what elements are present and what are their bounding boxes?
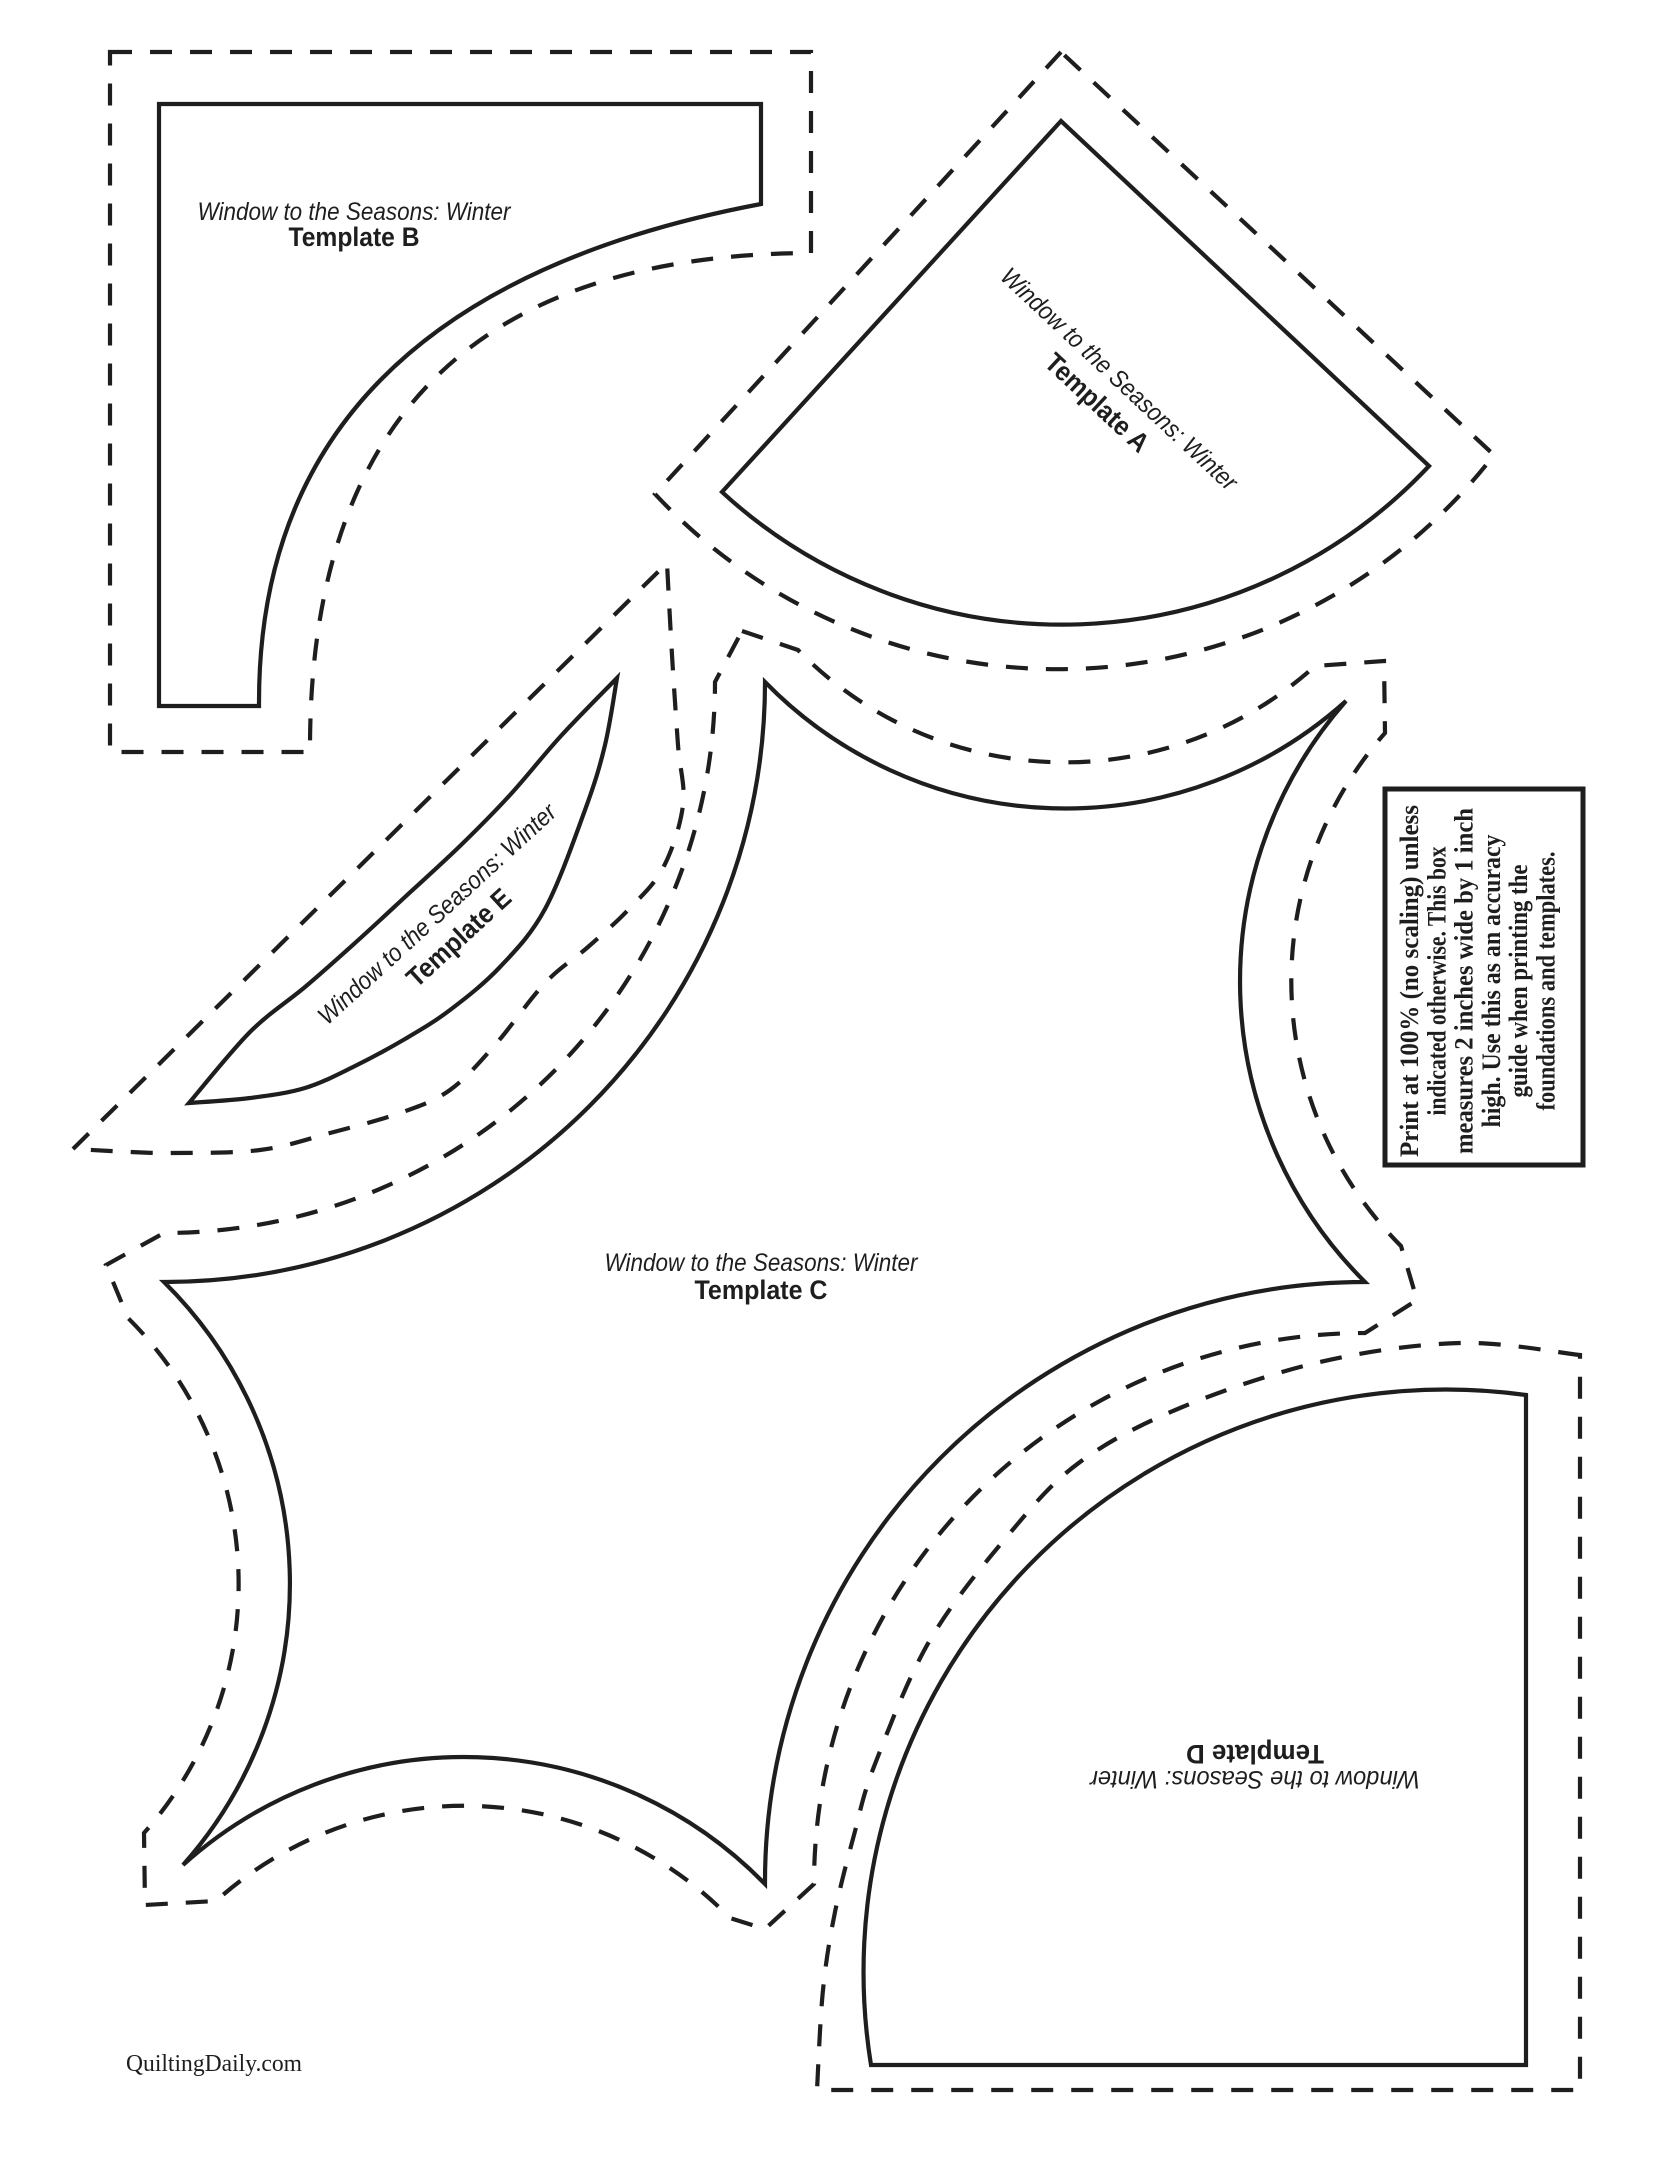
svg-text:Window to the Seasons: Winter: Window to the Seasons: Winter [995,262,1244,497]
svg-text:Template B: Template B [289,222,420,252]
svg-text:guide when printing the: guide when printing the [1504,865,1533,1098]
svg-text:Window to the Seasons: Winter: Window to the Seasons: Winter [605,1249,920,1277]
svg-text:Print at 100% (no scaling) unl: Print at 100% (no scaling) unless [1395,805,1424,1157]
svg-text:Template D: Template D [1186,1739,1324,1769]
svg-text:high. Use this as an accuracy: high. Use this as an accuracy [1477,835,1506,1128]
svg-text:Window to the Seasons: Winter: Window to the Seasons: Winter [312,797,563,1030]
svg-text:foundations and templates.: foundations and templates. [1532,852,1561,1111]
svg-text:Template C: Template C [695,1275,828,1305]
svg-text:QuiltingDaily.com: QuiltingDaily.com [126,2051,302,2077]
svg-text:indicated otherwise. This box: indicated otherwise. This box [1422,847,1451,1116]
svg-text:measures 2 inches wide by 1 in: measures 2 inches wide by 1 inch [1450,807,1479,1154]
